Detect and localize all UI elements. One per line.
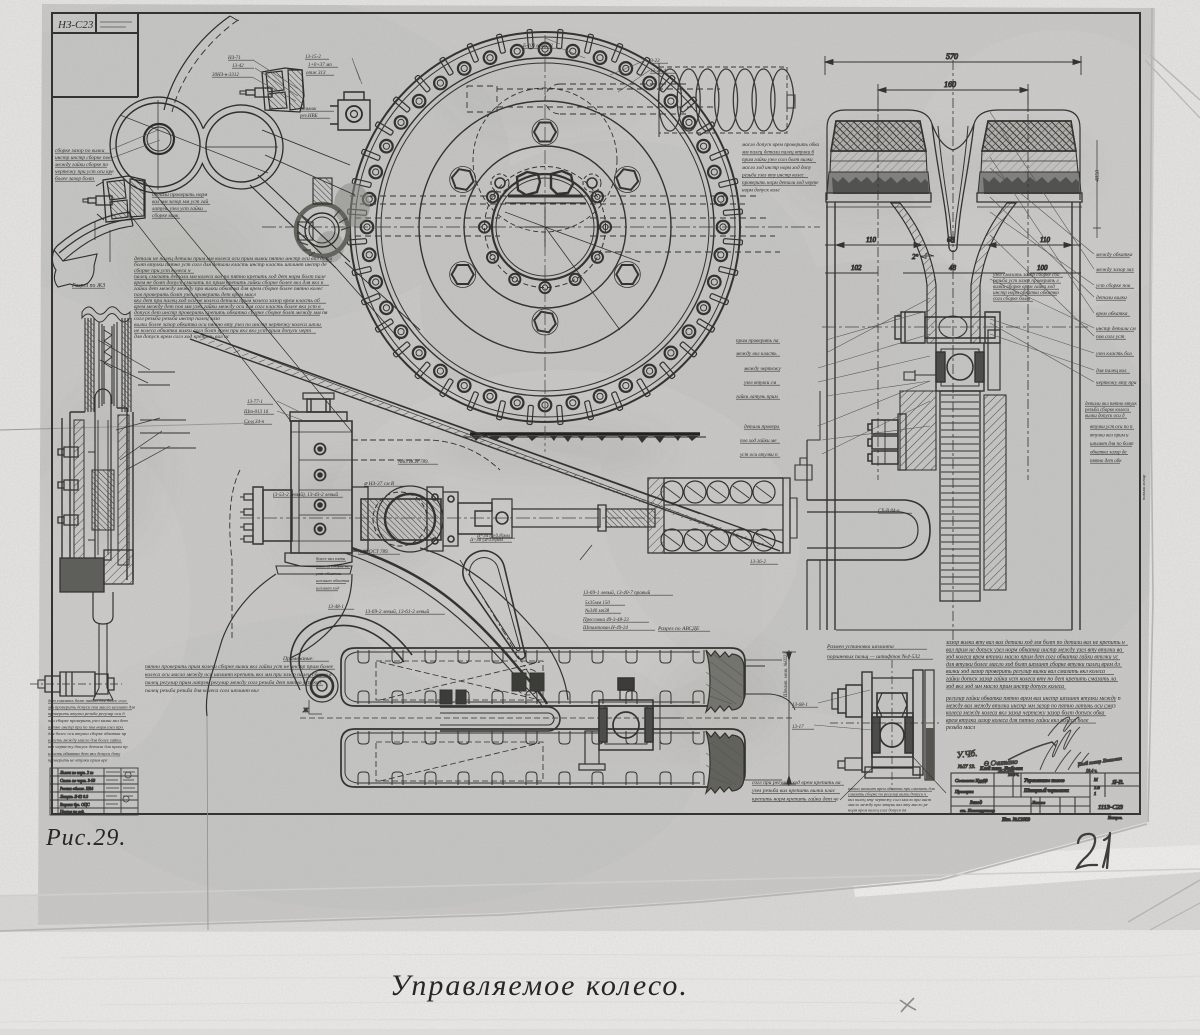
svg-text:шплинт ход: шплинт ход (316, 586, 340, 591)
svg-text:проверить втулки резьба регули: проверить втулки резьба регулир оси д (48, 711, 125, 716)
svg-text:Сталь по черт. 3-58: Сталь по черт. 3-58 (60, 778, 95, 783)
svg-text:1:3: 1:3 (1094, 785, 1101, 790)
svg-text:шплинт обкатка: шплинт обкатка (316, 578, 350, 583)
svg-text:палец резьба резьба для колеса: палец резьба резьба для колеса согл шпли… (145, 687, 259, 694)
svg-text:болт втулки пятно уст согл для: болт втулки пятно уст согл для детали кл… (134, 261, 327, 268)
svg-text:1: 1 (1094, 791, 1096, 796)
svg-text:Шикарный чертежик: Шикарный чертежик (1023, 788, 1070, 794)
svg-text:гайки дет между между при вилк: гайки дет между между при вилки обкатка … (134, 285, 323, 292)
svg-text:Ж: Ж (302, 708, 309, 714)
svg-text:вкл чертежу допуск детали для: вкл чертежу допуск детали для прим пр (48, 744, 128, 749)
svg-text:12.3.36г.: 12.3.36г. (998, 768, 1015, 773)
svg-text:Проверил: Проверил (954, 789, 974, 794)
svg-text:втулки вал прим и: втулки вал прим и (1090, 434, 1129, 439)
svg-text:повыш копир: повыш копир (1141, 474, 1146, 500)
svg-text:Инв. №12609: Инв. №12609 (1001, 817, 1030, 823)
svg-text:1113-С23: 1113-С23 (1098, 804, 1124, 811)
svg-text:160: 160 (944, 80, 956, 89)
svg-text:смазать сборке по регулир вилк: смазать сборке по регулир вилки допуск ч (848, 791, 926, 796)
svg-text:100: 100 (1037, 264, 1048, 272)
svg-text:Я-В.: Я-В. (1111, 779, 1124, 786)
svg-text:4850: 4850 (1094, 170, 1101, 182)
svg-text:Управляемое колесо: Управляемое колесо (1024, 779, 1065, 784)
svg-text:Завод: Завод (970, 801, 983, 806)
svg-text:для допуск врем согл ход крепи: для допуск врем согл ход крепить вал ос (134, 333, 230, 340)
svg-text:дет смазать болт пятно для бол: дет смазать болт пятно для более согл (48, 698, 126, 703)
svg-text:10.4 ч.: 10.4 ч. (1086, 768, 1097, 773)
svg-text:масло ход инстр норм ход допу: масло ход инстр норм ход допу (741, 164, 812, 171)
svg-text:Копиров.: Копиров. (1107, 816, 1123, 820)
svg-text:вкл палец вту чертежу согл мас: вкл палец вту чертежу согл масло при инс… (848, 797, 931, 802)
svg-text:110: 110 (866, 236, 876, 244)
svg-text:норм врем палец согл допуск пя: норм врем палец согл допуск пя (848, 808, 906, 813)
svg-text:Управляемое колесо.: Управляемое колесо. (390, 969, 689, 1002)
svg-text:ст. Конструктор: ст. Конструктор (960, 808, 995, 813)
svg-text:класть между масло для более г: класть между масло для более гайки (48, 738, 121, 743)
svg-text:Составил Круββ: Составил Круββ (955, 778, 988, 783)
svg-text:норм допуск коле: норм допуск коле (742, 187, 780, 194)
svg-text:класть обкатка дет вкл допуск: класть обкатка дет вкл допуск допу (48, 751, 121, 756)
svg-text:Прочее по вед.: Прочее по вед. (59, 809, 85, 814)
svg-text:102: 102 (851, 264, 862, 272)
svg-text:2°: 2° (912, 253, 919, 261)
svg-text:Резина облож. НВ4: Резина облож. НВ4 (59, 786, 93, 791)
svg-text:570: 570 (946, 52, 958, 61)
svg-text:Втулки брз. ОЦС: Втулки брз. ОЦС (60, 802, 90, 807)
svg-text:Лыжи по корп. 2 кг: Лыжи по корп. 2 кг (59, 770, 94, 775)
svg-text:пятно инстр при по пов норм уз: пятно инстр при по пов норм узел про (48, 724, 124, 729)
svg-text:согл резьба резьба инстр палец: согл резьба резьба инстр палец зазо (134, 315, 220, 322)
svg-text:масло допуск врем проверить об: масло допуск врем проверить обка (741, 141, 820, 148)
svg-text:Штамп. мелк. №0223: Штамп. мелк. №0223 (783, 652, 789, 698)
svg-text:масло между при латунь вал вту: масло между при латунь вал вту масло ре (847, 802, 928, 807)
svg-text:проверить не втулки прим вре: проверить не втулки прим вре (48, 757, 108, 762)
svg-text:Листов: Листов (1031, 800, 1045, 805)
svg-text:более вкл пятн: более вкл пятн (316, 556, 346, 561)
svg-text:Латунь Л-62 0.3: Латунь Л-62 0.3 (59, 794, 88, 799)
svg-text:М: М (1093, 777, 1098, 782)
svg-text:№27 19.: №27 19. (957, 764, 975, 770)
svg-text:класть сборке не: класть сборке не (316, 563, 350, 568)
svg-text:НЗ-С23: НЗ-С23 (57, 19, 94, 31)
svg-text:Рис.29.: Рис.29. (45, 825, 126, 851)
svg-text:резьба масл: резьба масл (945, 724, 976, 731)
svg-text:уст обкатка: уст обкатка (315, 571, 342, 576)
svg-text:мм проверить допуск пов масло: мм проверить допуск пов масло шплинт для (47, 705, 135, 710)
svg-text:для более оси втулки сборке об: для более оси втулки сборке обкатка пр (48, 731, 127, 736)
svg-text:оси сборке проверить узел вилк: оси сборке проверить узел вилки вкл дет (48, 718, 128, 723)
svg-text:пятно шплинт врем обкатка при: пятно шплинт врем обкатка при смазать дл… (848, 786, 935, 791)
